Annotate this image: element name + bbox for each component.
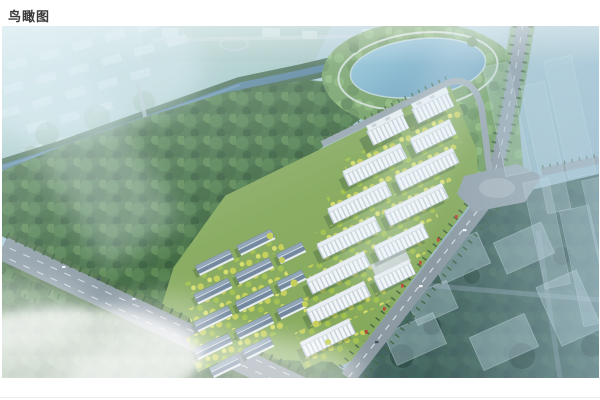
page: 鸟瞰图	[0, 0, 600, 400]
aerial-scene	[2, 26, 599, 378]
aerial-rendering	[2, 26, 599, 378]
page-title: 鸟瞰图	[8, 6, 50, 25]
footer-divider	[0, 397, 600, 398]
